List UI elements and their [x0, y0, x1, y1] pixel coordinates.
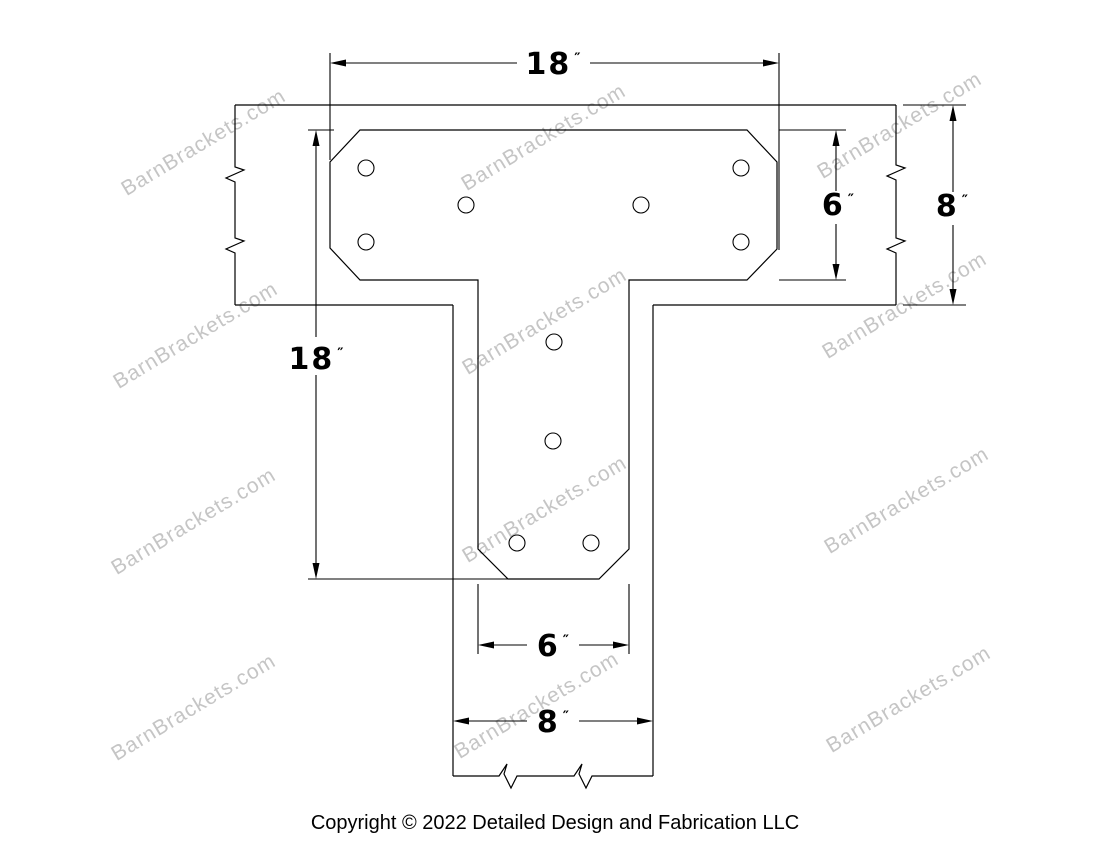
bolt-hole — [733, 234, 749, 250]
arrowhead-down — [950, 289, 957, 305]
arrowhead-left — [330, 60, 346, 67]
bolt-hole — [583, 535, 599, 551]
watermark-text: BarnBrackets.com — [117, 84, 290, 200]
post-bottom-edge-with-breaks — [453, 764, 653, 788]
bolt-hole — [546, 334, 562, 350]
bracket-drawing: BarnBrackets.com BarnBrackets.com BarnBr… — [0, 0, 1100, 850]
dimension-label: 6″ — [822, 188, 854, 223]
bolt-hole — [545, 433, 561, 449]
copyright-text: Copyright © 2022 Detailed Design and Fab… — [311, 812, 799, 834]
watermark-text: BarnBrackets.com — [822, 641, 995, 757]
watermark-text: BarnBrackets.com — [458, 263, 631, 379]
arrowhead-down — [313, 563, 320, 579]
arrowhead-right — [637, 718, 653, 725]
bolt-hole — [358, 234, 374, 250]
bolt-hole — [358, 160, 374, 176]
watermark-text: BarnBrackets.com — [109, 277, 282, 393]
arrowhead-left — [478, 642, 494, 649]
arrowhead-up — [833, 130, 840, 146]
dimension-label: 6″ — [537, 629, 569, 664]
arrowhead-down — [833, 264, 840, 280]
bolt-hole — [458, 197, 474, 213]
dimension-label: 18″ — [525, 47, 580, 82]
arrowhead-left — [453, 718, 469, 725]
dimension-label: 8″ — [537, 705, 569, 740]
dimension-label: 18″ — [288, 342, 343, 377]
dimension-label: 8″ — [936, 189, 968, 224]
watermark-text: BarnBrackets.com — [107, 649, 280, 765]
bolt-hole — [633, 197, 649, 213]
bolt-hole — [733, 160, 749, 176]
arrowhead-right — [613, 642, 629, 649]
watermark-text: BarnBrackets.com — [107, 463, 280, 579]
watermark-text: BarnBrackets.com — [457, 79, 630, 195]
dimension-top-width: 18″ — [330, 47, 779, 250]
watermark-text: BarnBrackets.com — [820, 442, 993, 558]
drawing-page: BarnBrackets.com BarnBrackets.com BarnBr… — [0, 0, 1100, 850]
watermark-text: BarnBrackets.com — [458, 451, 631, 567]
arrowhead-up — [313, 130, 320, 146]
arrowhead-right — [763, 60, 779, 67]
